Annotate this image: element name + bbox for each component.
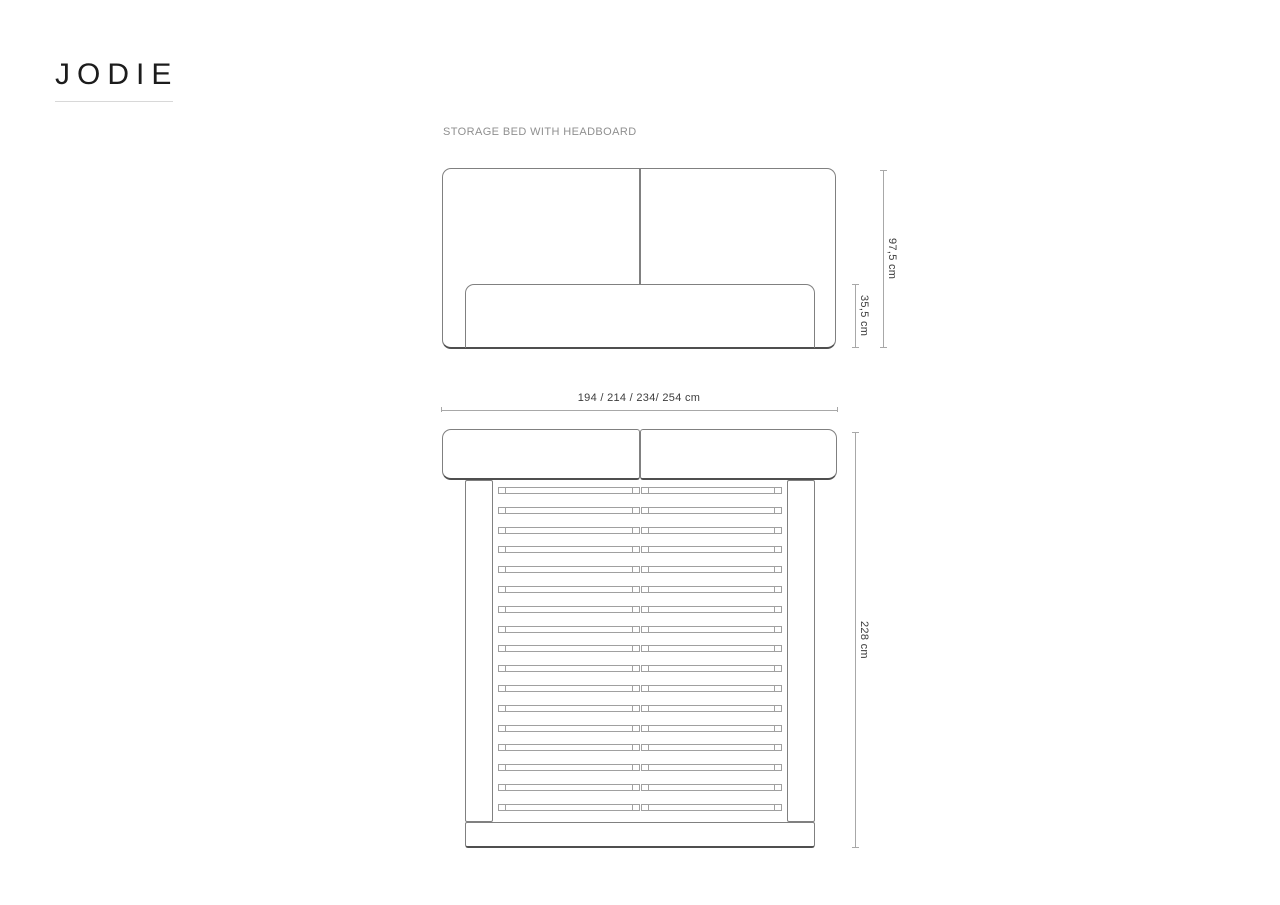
slat-end-cap <box>774 745 775 750</box>
top-view-headboard-left <box>442 429 640 480</box>
slat-end-cap <box>632 646 633 651</box>
slat-end-cap <box>632 666 633 671</box>
slat-right <box>641 744 782 751</box>
slat-end-cap <box>648 567 649 572</box>
slat-left <box>498 804 640 811</box>
top-view-foot-panel <box>465 822 815 848</box>
slat-end-cap <box>648 706 649 711</box>
slat-end-cap <box>505 785 506 790</box>
slat-end-cap <box>648 528 649 533</box>
slat-end-cap <box>774 765 775 770</box>
slat-right <box>641 546 782 553</box>
slat-end-cap <box>632 528 633 533</box>
slat-left <box>498 645 640 652</box>
slat-end-cap <box>774 528 775 533</box>
slat-end-cap <box>648 607 649 612</box>
slat-end-cap <box>505 686 506 691</box>
slat-end-cap <box>648 686 649 691</box>
slat-end-cap <box>632 745 633 750</box>
slat-end-cap <box>632 587 633 592</box>
slat-end-cap <box>648 508 649 513</box>
slat-right <box>641 685 782 692</box>
spec-sheet: JODIE STORAGE BED WITH HEADBOARD 97,5 cm… <box>0 0 1280 905</box>
slat-left <box>498 665 640 672</box>
slat-left <box>498 606 640 613</box>
slat-end-cap <box>648 745 649 750</box>
slat-end-cap <box>774 627 775 632</box>
dim-line-headboard-height <box>883 170 884 348</box>
slat-right <box>641 804 782 811</box>
slat-end-cap <box>505 547 506 552</box>
dim-label-frame-height: 35,5 cm <box>858 284 870 348</box>
slat-end-cap <box>774 646 775 651</box>
dim-label-headboard-height: 97,5 cm <box>886 170 898 348</box>
slat-left <box>498 566 640 573</box>
slat-right <box>641 586 782 593</box>
slat-left <box>498 705 640 712</box>
slat-end-cap <box>648 587 649 592</box>
slat-end-cap <box>648 805 649 810</box>
slat-end-cap <box>632 726 633 731</box>
slat-end-cap <box>505 726 506 731</box>
slat-end-cap <box>774 805 775 810</box>
slat-end-cap <box>774 547 775 552</box>
top-view-headboard-right <box>640 429 837 480</box>
dim-line-length <box>855 432 856 848</box>
slat-end-cap <box>648 765 649 770</box>
slat-end-cap <box>505 706 506 711</box>
slat-end-cap <box>774 567 775 572</box>
slat-end-cap <box>505 745 506 750</box>
slat-end-cap <box>632 785 633 790</box>
slat-right <box>641 705 782 712</box>
slat-end-cap <box>505 528 506 533</box>
slat-end-cap <box>505 567 506 572</box>
slat-end-cap <box>774 686 775 691</box>
slat-end-cap <box>648 646 649 651</box>
slat-right <box>641 784 782 791</box>
slat-end-cap <box>774 587 775 592</box>
slat-end-cap <box>774 726 775 731</box>
slat-end-cap <box>648 726 649 731</box>
dim-line-widths <box>441 410 838 411</box>
slat-left <box>498 764 640 771</box>
slat-end-cap <box>632 607 633 612</box>
slat-left <box>498 784 640 791</box>
brand-logo: JODIE <box>55 58 178 92</box>
slat-right <box>641 626 782 633</box>
dim-label-length: 228 cm <box>858 432 870 848</box>
slat-left <box>498 685 640 692</box>
slat-left <box>498 586 640 593</box>
slat-right <box>641 507 782 514</box>
slat-left <box>498 546 640 553</box>
slat-end-cap <box>774 785 775 790</box>
slat-end-cap <box>774 508 775 513</box>
slat-right <box>641 606 782 613</box>
slat-end-cap <box>632 508 633 513</box>
slat-end-cap <box>774 488 775 493</box>
slat-end-cap <box>505 508 506 513</box>
slat-left <box>498 725 640 732</box>
slat-end-cap <box>505 607 506 612</box>
slat-end-cap <box>632 547 633 552</box>
dim-tick <box>837 407 838 412</box>
front-view-bed-frame <box>465 284 815 349</box>
slat-end-cap <box>648 627 649 632</box>
slat-end-cap <box>632 488 633 493</box>
top-view-side-rail-left <box>465 480 493 822</box>
slat-left <box>498 626 640 633</box>
slat-end-cap <box>505 765 506 770</box>
slat-end-cap <box>648 666 649 671</box>
slat-right <box>641 725 782 732</box>
slat-left <box>498 507 640 514</box>
slat-left <box>498 744 640 751</box>
slat-left <box>498 487 640 494</box>
slat-end-cap <box>505 627 506 632</box>
front-view-headboard-divider <box>639 169 641 285</box>
slat-right <box>641 764 782 771</box>
slat-right <box>641 566 782 573</box>
slat-end-cap <box>505 666 506 671</box>
slat-end-cap <box>632 686 633 691</box>
slat-right <box>641 665 782 672</box>
slat-end-cap <box>632 805 633 810</box>
slat-end-cap <box>632 567 633 572</box>
slat-end-cap <box>648 785 649 790</box>
slat-end-cap <box>632 706 633 711</box>
slat-end-cap <box>648 488 649 493</box>
slat-right <box>641 645 782 652</box>
slat-end-cap <box>632 765 633 770</box>
slat-end-cap <box>632 627 633 632</box>
slat-right <box>641 527 782 534</box>
dim-tick <box>441 407 442 412</box>
product-label: STORAGE BED WITH HEADBOARD <box>443 126 637 138</box>
slat-end-cap <box>774 607 775 612</box>
slat-end-cap <box>774 706 775 711</box>
slat-end-cap <box>505 488 506 493</box>
slat-right <box>641 487 782 494</box>
dim-line-frame-height <box>855 284 856 348</box>
slat-end-cap <box>505 646 506 651</box>
slat-end-cap <box>505 805 506 810</box>
top-view-side-rail-right <box>787 480 815 822</box>
slat-end-cap <box>774 666 775 671</box>
slat-left <box>498 527 640 534</box>
brand-logo-underline <box>55 101 173 102</box>
slat-end-cap <box>505 587 506 592</box>
slat-end-cap <box>648 547 649 552</box>
dim-label-widths: 194 / 214 / 234/ 254 cm <box>440 392 838 404</box>
